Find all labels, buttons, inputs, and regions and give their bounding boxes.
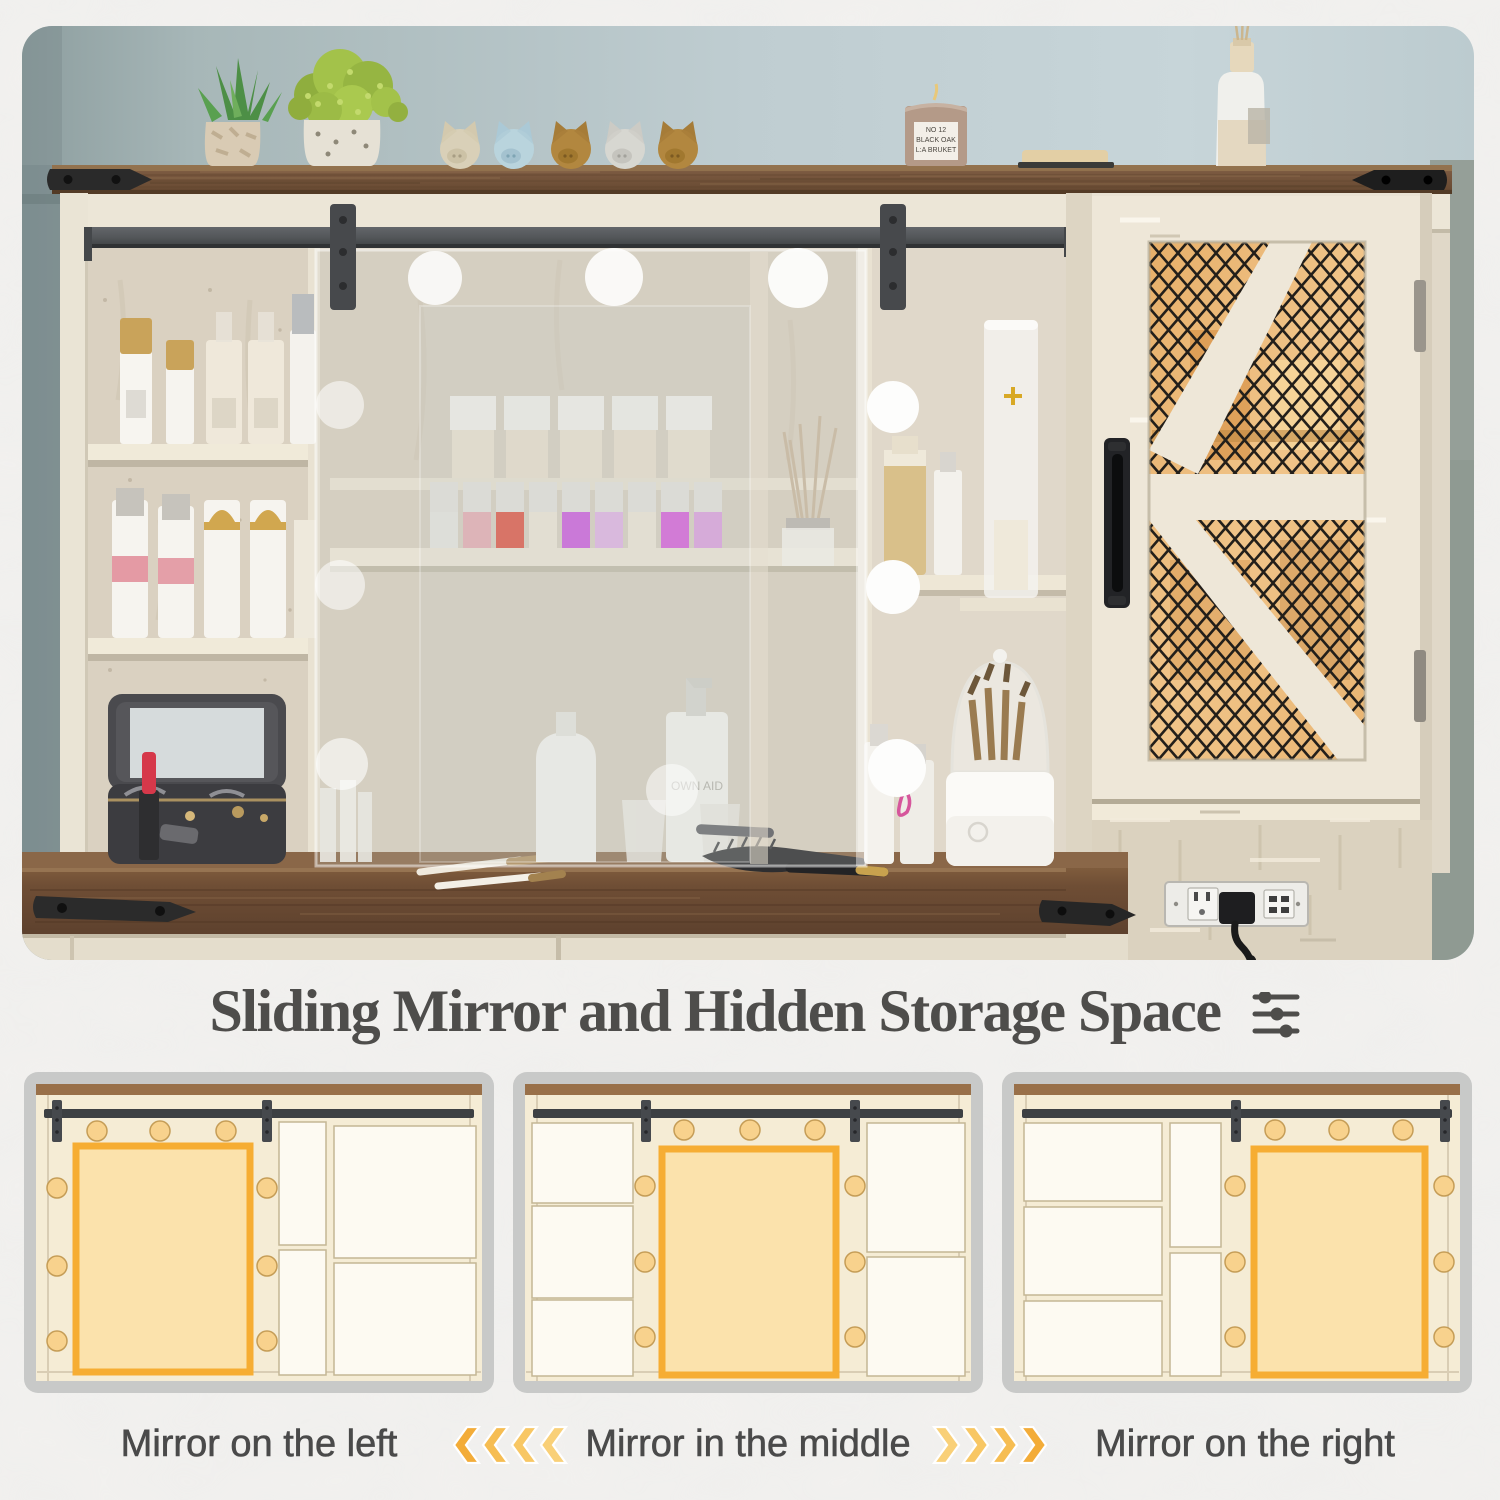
svg-text:BLACK OAK: BLACK OAK	[916, 137, 956, 144]
svg-text:NO 12: NO 12	[926, 127, 946, 134]
svg-text:L:A BRUKET: L:A BRUKET	[916, 147, 957, 154]
